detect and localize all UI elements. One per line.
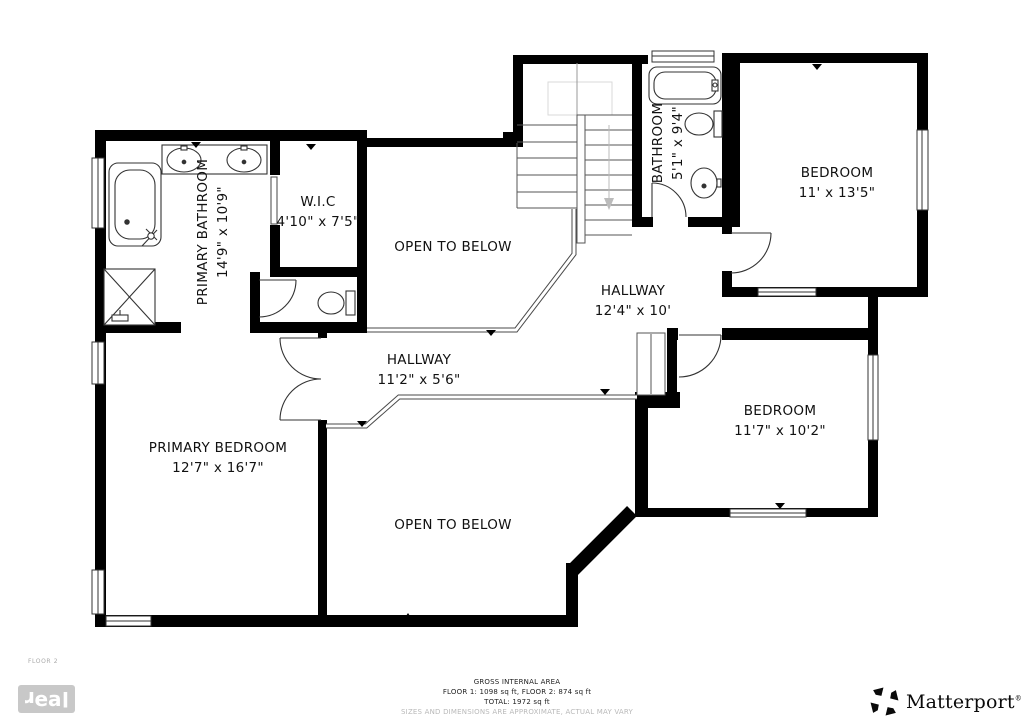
room-name: PRIMARY BATHROOM xyxy=(193,159,213,305)
room-dims: 12'7" x 16'7" xyxy=(149,458,287,478)
matterport-pinwheel-icon xyxy=(869,686,900,717)
matterport-logo: Matterport® xyxy=(869,686,1022,717)
floorplan-drawing xyxy=(0,0,1024,724)
logo-letter: l xyxy=(62,689,69,709)
gross-internal-area-note: GROSS INTERNAL AREA FLOOR 1: 1098 sq ft,… xyxy=(401,677,633,717)
room-dims: 5'1" x 9'4" xyxy=(668,103,688,184)
room-name: OPEN TO BELOW xyxy=(394,237,512,257)
window xyxy=(92,570,104,614)
window xyxy=(868,355,878,440)
floorplan-page: PRIMARY BATHROOM 14'9" x 10'9" W.I.C 4'1… xyxy=(0,0,1024,724)
room-label-primary-bedroom: PRIMARY BEDROOM 12'7" x 16'7" xyxy=(149,438,287,478)
room-label-wic: W.I.C 4'10" x 7'5" xyxy=(277,192,360,232)
shower-icon xyxy=(104,269,155,325)
window xyxy=(652,51,714,62)
toilet-icon xyxy=(318,291,355,315)
room-name: OPEN TO BELOW xyxy=(394,515,512,535)
door-arc xyxy=(259,280,296,317)
room-dims: 11' x 13'5" xyxy=(799,183,875,203)
bathtub-icon xyxy=(649,67,721,104)
logo-letter: r xyxy=(25,689,35,709)
room-name: HALLWAY xyxy=(378,350,461,370)
area-floors: FLOOR 1: 1098 sq ft, FLOOR 2: 874 sq ft xyxy=(401,687,633,697)
window xyxy=(92,342,104,384)
sliding-door xyxy=(758,288,816,296)
bathtub-icon xyxy=(109,163,161,246)
real-brokerage-logo: r e a l xyxy=(18,685,75,713)
room-label-open-below-bottom: OPEN TO BELOW xyxy=(394,515,512,535)
room-label-bathroom: BATHROOM 5'1" x 9'4" xyxy=(648,103,688,184)
room-label-bedroom-right: BEDROOM 11'7" x 10'2" xyxy=(734,401,826,441)
door-arc xyxy=(652,183,686,217)
door-arc xyxy=(731,233,771,273)
logo-letter: e xyxy=(34,689,48,709)
room-dims: 12'4" x 10' xyxy=(595,301,671,321)
matterport-text: Matterport xyxy=(906,691,1015,713)
logo-letter: a xyxy=(48,689,62,709)
room-name: HALLWAY xyxy=(595,281,671,301)
registered-mark: ® xyxy=(1015,694,1022,702)
area-total: TOTAL: 1972 sq ft xyxy=(401,697,633,707)
toilet-icon xyxy=(685,111,722,137)
area-title: GROSS INTERNAL AREA xyxy=(401,677,633,687)
matterport-wordmark: Matterport® xyxy=(906,691,1022,713)
room-name: BATHROOM xyxy=(648,103,668,184)
walls-layer xyxy=(95,53,928,627)
room-label-bedroom-top: BEDROOM 11' x 13'5" xyxy=(799,163,875,203)
room-name: BEDROOM xyxy=(734,401,826,421)
room-dims: 4'10" x 7'5" xyxy=(277,212,360,232)
room-dims: 11'2" x 5'6" xyxy=(378,370,461,390)
floor-number-label: FLOOR 2 xyxy=(28,658,58,665)
window xyxy=(106,616,151,626)
room-dims: 11'7" x 10'2" xyxy=(734,421,826,441)
window xyxy=(92,158,104,228)
room-label-primary-bathroom: PRIMARY BATHROOM 14'9" x 10'9" xyxy=(193,159,233,305)
window xyxy=(730,509,806,517)
room-label-open-below-top: OPEN TO BELOW xyxy=(394,237,512,257)
room-name: W.I.C xyxy=(277,192,360,212)
door-arc xyxy=(679,335,721,377)
room-label-hallway-main: HALLWAY 12'4" x 10' xyxy=(595,281,671,321)
sink-icon xyxy=(691,168,721,198)
stairs-down-arrow-icon xyxy=(604,198,614,210)
faucet-icon xyxy=(712,80,718,91)
room-name: BEDROOM xyxy=(799,163,875,183)
room-name: PRIMARY BEDROOM xyxy=(149,438,287,458)
window xyxy=(917,130,928,210)
double-door-arc xyxy=(280,338,321,420)
area-disclaimer: SIZES AND DIMENSIONS ARE APPROXIMATE, AC… xyxy=(401,707,633,717)
room-dims: 14'9" x 10'9" xyxy=(213,159,233,305)
room-label-hallway-small: HALLWAY 11'2" x 5'6" xyxy=(378,350,461,390)
